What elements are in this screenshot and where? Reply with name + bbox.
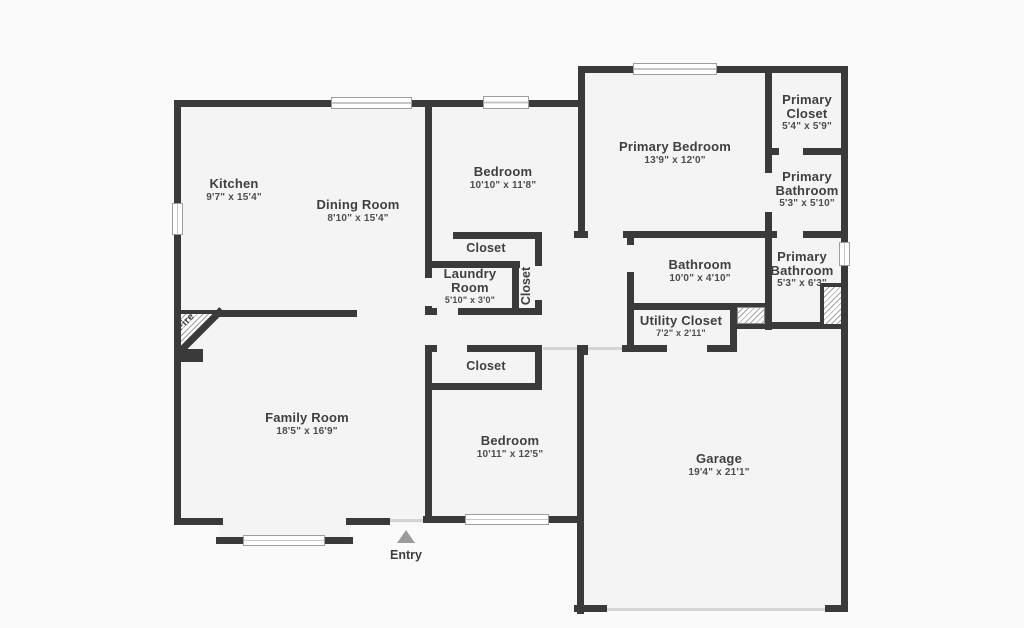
room-label-primary-bathroom-lower: Primary Bathroom 5'3" x 6'3" [767,250,837,290]
window [483,96,529,109]
window [243,535,325,546]
floor-plan: Fire Kitchen 9'7" x 15'4" Dining Room 8'… [0,0,1024,628]
wall [323,537,353,544]
room-label-hall-closet-top: Closet [466,242,505,256]
wall [410,100,487,107]
room-label-laundry-room: Laundry Room 5'10" x 3'0" [439,267,501,307]
wall [627,231,634,245]
wall [841,66,848,243]
room-label-utility-closet: Utility Closet 7'2" x 2'11" [640,314,722,339]
wall [623,231,777,238]
room-label-closet-vertical: Closet [519,267,533,305]
wall [578,66,585,238]
room-label-closet-bedroom2: Closet [466,360,505,374]
wall [535,232,542,266]
wall [174,518,223,525]
window [465,514,549,525]
wall [425,345,432,523]
wall [467,345,542,352]
wall [578,66,639,73]
wall [765,66,772,155]
wall [512,261,519,315]
garage-door-opening [607,608,825,611]
room-label-primary-bedroom: Primary Bedroom 13'9" x 12'0" [619,140,731,167]
room-label-primary-bathroom-upper: Primary Bathroom 5'3" x 5'10" [772,170,842,210]
room-label-family-room: Family Room 18'5" x 16'9" [265,411,349,438]
wall [425,383,542,390]
room-label-garage: Garage 19'4" x 21'1" [688,452,749,479]
entry-label: Entry [390,548,422,562]
door-opening [390,519,423,522]
window [331,97,412,109]
wall [174,234,181,525]
door-opening [543,347,577,350]
wall [425,306,432,315]
wall [535,300,542,315]
wall [346,518,390,525]
wall [174,100,334,107]
wall [174,100,181,204]
wall [730,310,737,352]
wall [765,155,772,173]
room-label-bedroom-bottom: Bedroom 10'11" x 12'5" [477,434,544,461]
room-label-dining-room: Dining Room 8'10" x 15'4" [316,198,399,225]
room-label-kitchen: Kitchen 9'7" x 15'4" [206,177,262,204]
fireplace-base [174,349,203,362]
wall [535,345,542,390]
attic-access-hatch [737,307,765,324]
room-label-bathroom: Bathroom 10'0" x 4'10" [669,258,732,285]
wall [425,100,432,278]
door-opening [588,347,622,350]
wall [627,272,634,352]
wall [453,232,542,239]
wall [765,212,772,238]
window [839,242,850,266]
wall [714,66,848,73]
wall [216,537,246,544]
window [633,63,717,75]
wall [458,308,542,315]
wall [841,265,848,612]
entry-arrow-icon [397,530,415,543]
room-label-primary-closet: Primary Closet 5'4" x 5'9" [775,93,839,133]
room-label-bedroom-top: Bedroom 10'10" x 11'8" [470,165,537,192]
wall [577,345,584,614]
window [172,203,183,235]
wall [526,100,585,107]
